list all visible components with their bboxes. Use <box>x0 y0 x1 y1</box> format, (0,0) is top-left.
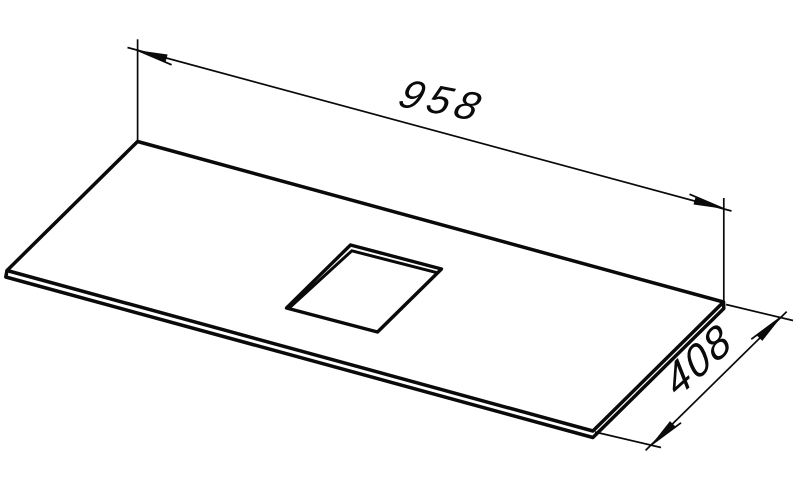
svg-text:958: 958 <box>393 71 492 130</box>
svg-text:408: 408 <box>657 314 740 407</box>
